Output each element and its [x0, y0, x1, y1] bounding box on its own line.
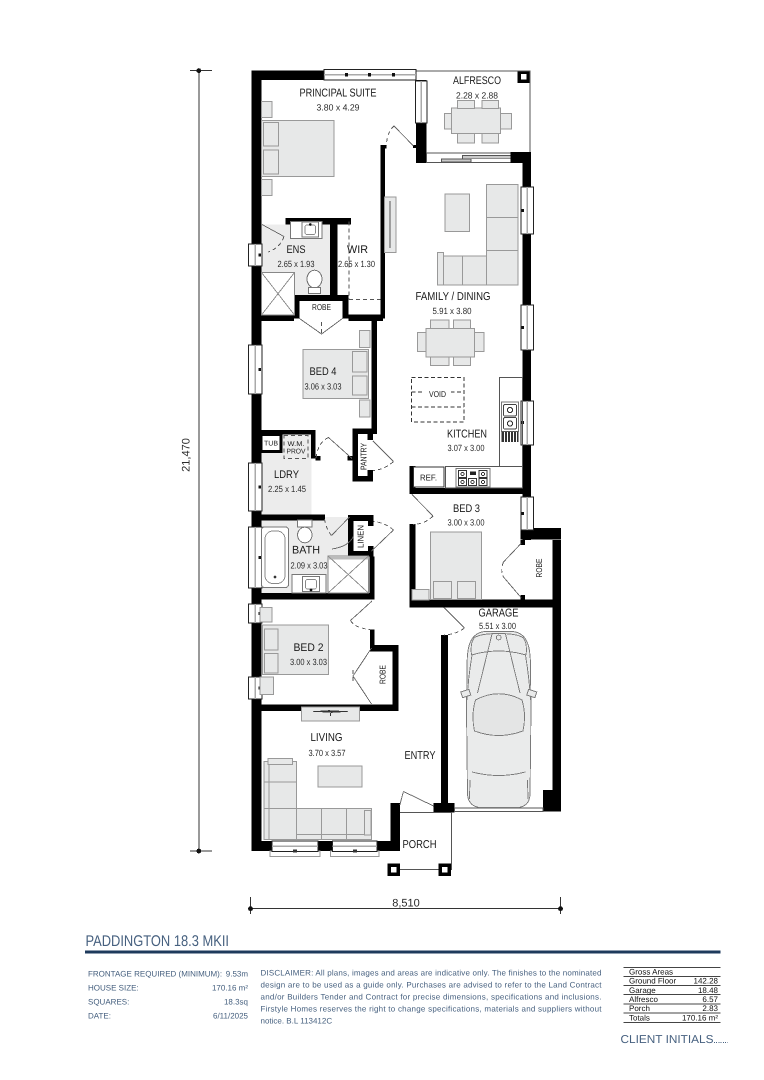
svg-text:170.16 m²: 170.16 m² [682, 1014, 718, 1023]
svg-text:GARAGE: GARAGE [479, 608, 519, 620]
svg-text:2.65 x 1.93: 2.65 x 1.93 [278, 259, 315, 269]
svg-text:18.48: 18.48 [698, 986, 719, 995]
svg-text:2.09 x 3.03: 2.09 x 3.03 [291, 561, 328, 571]
svg-text:DISCLAIMER: All plans, images: DISCLAIMER: All plans, images and areas … [261, 969, 602, 978]
svg-text:HOUSE SIZE:: HOUSE SIZE: [88, 984, 139, 993]
svg-text:W.M.: W.M. [288, 441, 305, 448]
svg-text:ROBE: ROBE [534, 558, 544, 577]
svg-text:2.83: 2.83 [702, 1004, 718, 1013]
svg-text:Gross Areas: Gross Areas [629, 968, 673, 977]
svg-text:BATH: BATH [292, 545, 320, 557]
svg-text:LINEN: LINEN [356, 525, 366, 548]
svg-text:DATE:: DATE: [88, 1012, 111, 1021]
svg-text:TUB: TUB [264, 441, 278, 448]
svg-text:6.57: 6.57 [702, 995, 718, 1004]
svg-text:Porch: Porch [629, 1004, 650, 1013]
svg-text:142.28: 142.28 [694, 977, 719, 986]
svg-text:8,510: 8,510 [392, 898, 420, 910]
svg-text:5.91 x 3.80: 5.91 x 3.80 [433, 306, 472, 316]
svg-text:LIVING: LIVING [311, 732, 343, 744]
svg-text:18.3sq: 18.3sq [224, 998, 248, 1007]
svg-text:3.07 x 3.00: 3.07 x 3.00 [448, 443, 485, 453]
svg-text:PRINCIPAL SUITE: PRINCIPAL SUITE [300, 88, 377, 100]
svg-text:ROBE: ROBE [312, 302, 331, 312]
svg-text:ENTRY: ENTRY [405, 750, 436, 762]
svg-text:LDRY: LDRY [274, 469, 300, 481]
svg-text:WIR: WIR [347, 244, 368, 256]
svg-text:and/or Builders Tender and Con: and/or Builders Tender and Contract for … [261, 993, 602, 1002]
svg-text:3.80 x 4.29: 3.80 x 4.29 [317, 103, 360, 113]
svg-text:9.53m: 9.53m [226, 970, 249, 979]
svg-text:3.70 x 3.57: 3.70 x 3.57 [309, 748, 346, 758]
svg-text:3.00 x 3.03: 3.00 x 3.03 [290, 657, 327, 667]
svg-text:CLIENT INITIALS: CLIENT INITIALS [621, 1034, 714, 1046]
svg-text:Garage: Garage [629, 986, 656, 995]
svg-text:PANTRY: PANTRY [359, 443, 369, 470]
svg-text:FAMILY / DINING: FAMILY / DINING [416, 291, 491, 303]
svg-text:PADDINGTON 18.3 MKII: PADDINGTON 18.3 MKII [86, 933, 230, 950]
svg-text:KITCHEN: KITCHEN [447, 429, 487, 441]
svg-text:ALFRESCO: ALFRESCO [453, 75, 501, 87]
svg-text:3.06 x 3.03: 3.06 x 3.03 [305, 382, 342, 392]
svg-text:21,470: 21,470 [181, 438, 193, 472]
svg-text:BED 3: BED 3 [453, 503, 480, 515]
svg-text:BED 2: BED 2 [294, 642, 324, 654]
svg-text:6/11/2025: 6/11/2025 [213, 1012, 249, 1021]
svg-text:ROBE: ROBE [378, 665, 388, 684]
svg-text:notice. B.L 113412C: notice. B.L 113412C [261, 1017, 333, 1026]
svg-text:ENS: ENS [287, 244, 306, 256]
svg-text:2.28 x 2.88: 2.28 x 2.88 [456, 91, 498, 101]
svg-text:PORCH: PORCH [403, 839, 437, 851]
svg-text:SQUARES:: SQUARES: [88, 998, 129, 1007]
svg-text:BED 4: BED 4 [310, 366, 337, 378]
svg-text:Firstyle Homes reserves the ri: Firstyle Homes reserves the right to cha… [261, 1005, 603, 1014]
svg-text:2.25 x 1.45: 2.25 x 1.45 [268, 484, 306, 494]
svg-text:2.65 x 1.30: 2.65 x 1.30 [338, 259, 375, 269]
svg-text:VOID: VOID [429, 389, 446, 399]
svg-text:3.00 x 3.00: 3.00 x 3.00 [448, 518, 485, 528]
svg-text:5.51 x 3.00: 5.51 x 3.00 [479, 621, 516, 631]
svg-text:170.16 m²: 170.16 m² [212, 984, 248, 993]
svg-text:REF.: REF. [420, 473, 437, 483]
svg-text:Ground Floor: Ground Floor [629, 977, 676, 986]
svg-text:Totals: Totals [629, 1014, 650, 1023]
svg-text:FRONTAGE REQUIRED (MINIMUM):: FRONTAGE REQUIRED (MINIMUM): [88, 970, 222, 979]
svg-text:design are to be used as a gui: design are to be used as a guide only. P… [261, 981, 603, 990]
svg-text:Alfresco: Alfresco [629, 995, 658, 1004]
svg-text:PROV: PROV [287, 449, 306, 456]
